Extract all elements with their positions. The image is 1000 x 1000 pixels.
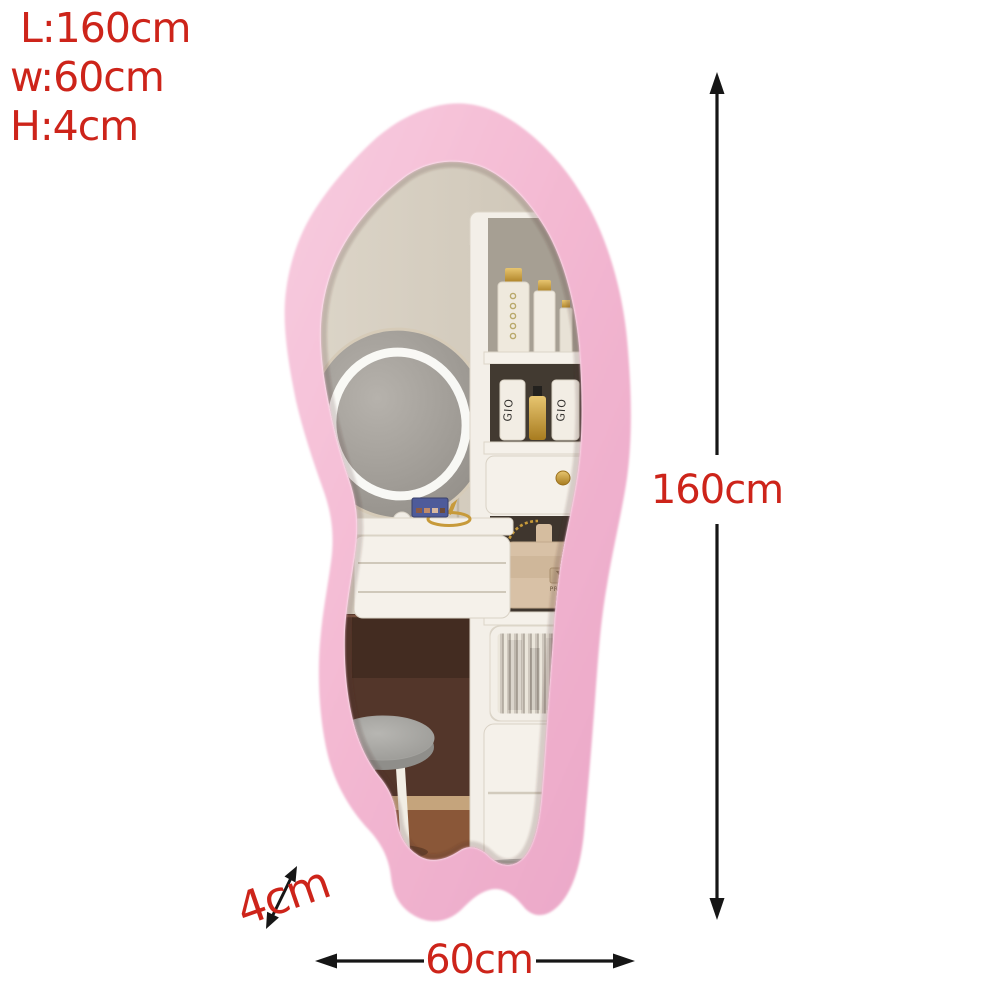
spec-line-width: w:60cm xyxy=(10,53,190,102)
product-dimension-image: GIO GIO xyxy=(0,0,1000,1000)
up-arrowhead-icon xyxy=(710,72,725,94)
down-arrowhead-icon xyxy=(710,898,725,920)
gold-knob-icon xyxy=(556,471,570,485)
spec-line-height: H:4cm xyxy=(10,102,190,151)
vanity-counter xyxy=(338,518,513,535)
spec-line-length: L:160cm xyxy=(10,4,190,53)
height-dimension-label: 160cm xyxy=(651,467,783,513)
width-dimension-label: 60cm xyxy=(425,937,533,983)
tube-label: GIO xyxy=(554,398,569,422)
tube-label: GIO xyxy=(501,398,516,422)
right-arrowhead-icon xyxy=(613,954,635,969)
spec-block: L:160cm w:60cm H:4cm xyxy=(10,4,190,151)
vanity-drawers xyxy=(354,536,510,618)
makeup-palette xyxy=(412,498,448,517)
under-desk-shadow xyxy=(352,616,473,678)
left-arrowhead-icon xyxy=(315,954,337,969)
